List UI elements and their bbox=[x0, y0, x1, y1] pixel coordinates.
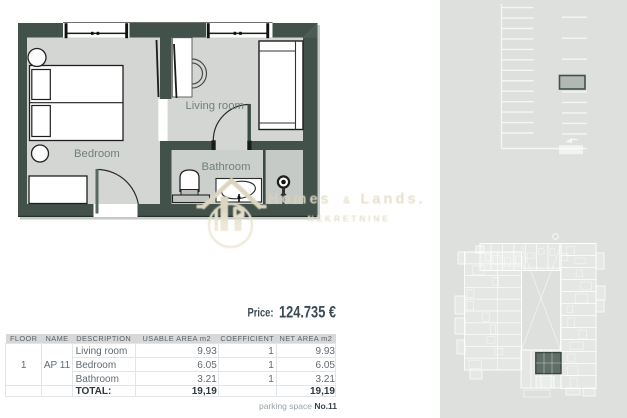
svg-text:124.735 €: 124.735 € bbox=[279, 304, 336, 322]
svg-text:Price:: Price: bbox=[248, 308, 274, 320]
